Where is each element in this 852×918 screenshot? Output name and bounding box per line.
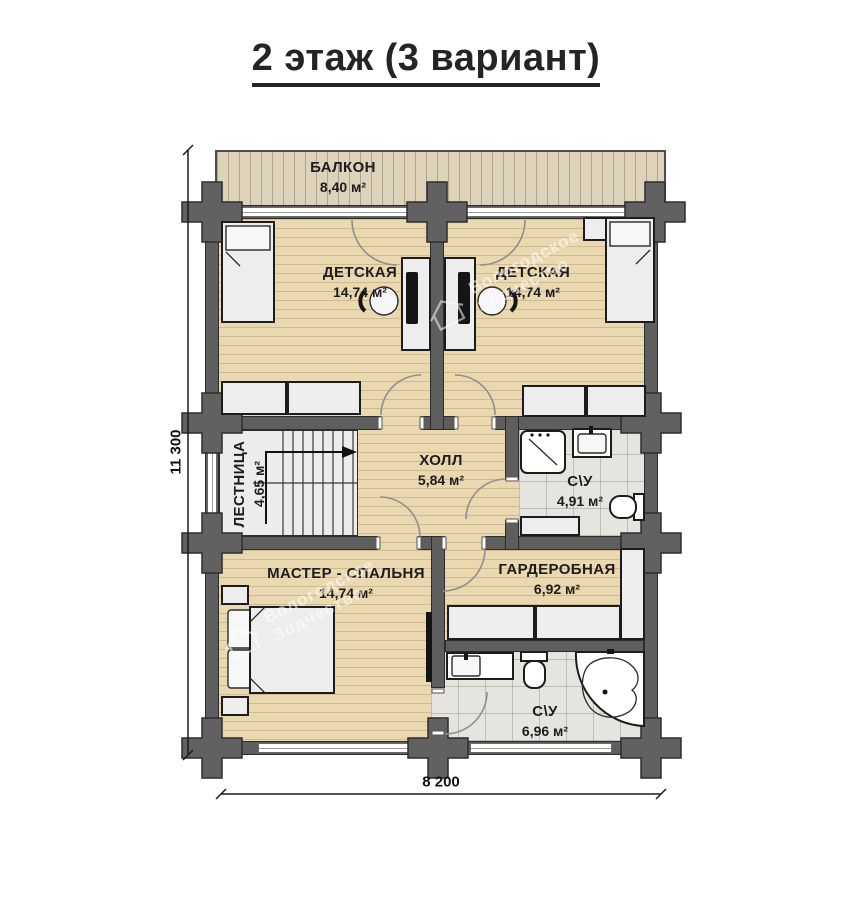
room-name: ХОЛЛ [419, 451, 463, 471]
room-area: 5,84 м² [418, 471, 464, 489]
wall-master-divider-bottom [431, 730, 445, 755]
wall-hall-bath-bottom [505, 520, 519, 550]
room-label-stairs: ЛЕСТНИЦА 4,65 м² [230, 441, 268, 528]
room-area: 4,65 м² [250, 461, 268, 507]
room-label-hall: ХОЛЛ 5,84 м² [418, 451, 464, 489]
page-title: 2 этаж (3 вариант) [252, 38, 601, 87]
room-label-balcony: БАЛКОН 8,40 м² [310, 158, 376, 196]
dimension-width-label: 8 200 [422, 774, 460, 791]
dimension-height-label: 11 300 [168, 429, 185, 474]
wall-right [644, 205, 658, 755]
room-name: ЛЕСТНИЦА [230, 441, 250, 528]
balcony-floor [215, 150, 666, 207]
window-balcony-right [450, 207, 644, 217]
wall-mid1-right [495, 416, 658, 430]
wall-mid1-left [205, 416, 381, 430]
window-balcony-left [227, 207, 424, 217]
dimension-line-width [216, 789, 666, 799]
window-master [258, 743, 425, 753]
room-label-bath-lower: С\У 6,96 м² [522, 702, 568, 740]
room-area: 4,91 м² [557, 492, 603, 510]
room-label-bath-upper: С\У 4,91 м² [557, 472, 603, 510]
room-name: ГАРДЕРОБНАЯ [498, 560, 615, 580]
dimension-line-height [183, 145, 193, 760]
wall-mid2-left [205, 536, 378, 550]
wall-master-divider-top [431, 536, 445, 688]
wall-hall-bath-top [505, 416, 519, 480]
room-area: 6,96 м² [522, 722, 568, 740]
room-name: ДЕТСКАЯ [323, 263, 397, 283]
room-name: С\У [567, 472, 593, 492]
room-name: БАЛКОН [310, 158, 376, 178]
window-stairs [207, 448, 217, 516]
room-label-wardrobe: ГАРДЕРОБНАЯ 6,92 м² [498, 560, 615, 598]
room-name: С\У [532, 702, 558, 722]
room-area: 8,40 м² [320, 178, 366, 196]
floor-plan-page: 2 этаж (3 вариант) [0, 0, 852, 918]
room-area: 14,74 м² [333, 283, 387, 301]
room-label-child-left: ДЕТСКАЯ 14,74 м² [323, 263, 397, 301]
child-left-floor [219, 219, 430, 416]
window-bath-lower [470, 743, 612, 753]
room-area: 6,92 м² [534, 580, 580, 598]
wall-wardrobe-bath [445, 640, 644, 652]
title-container: 2 этаж (3 вариант) [0, 38, 852, 87]
